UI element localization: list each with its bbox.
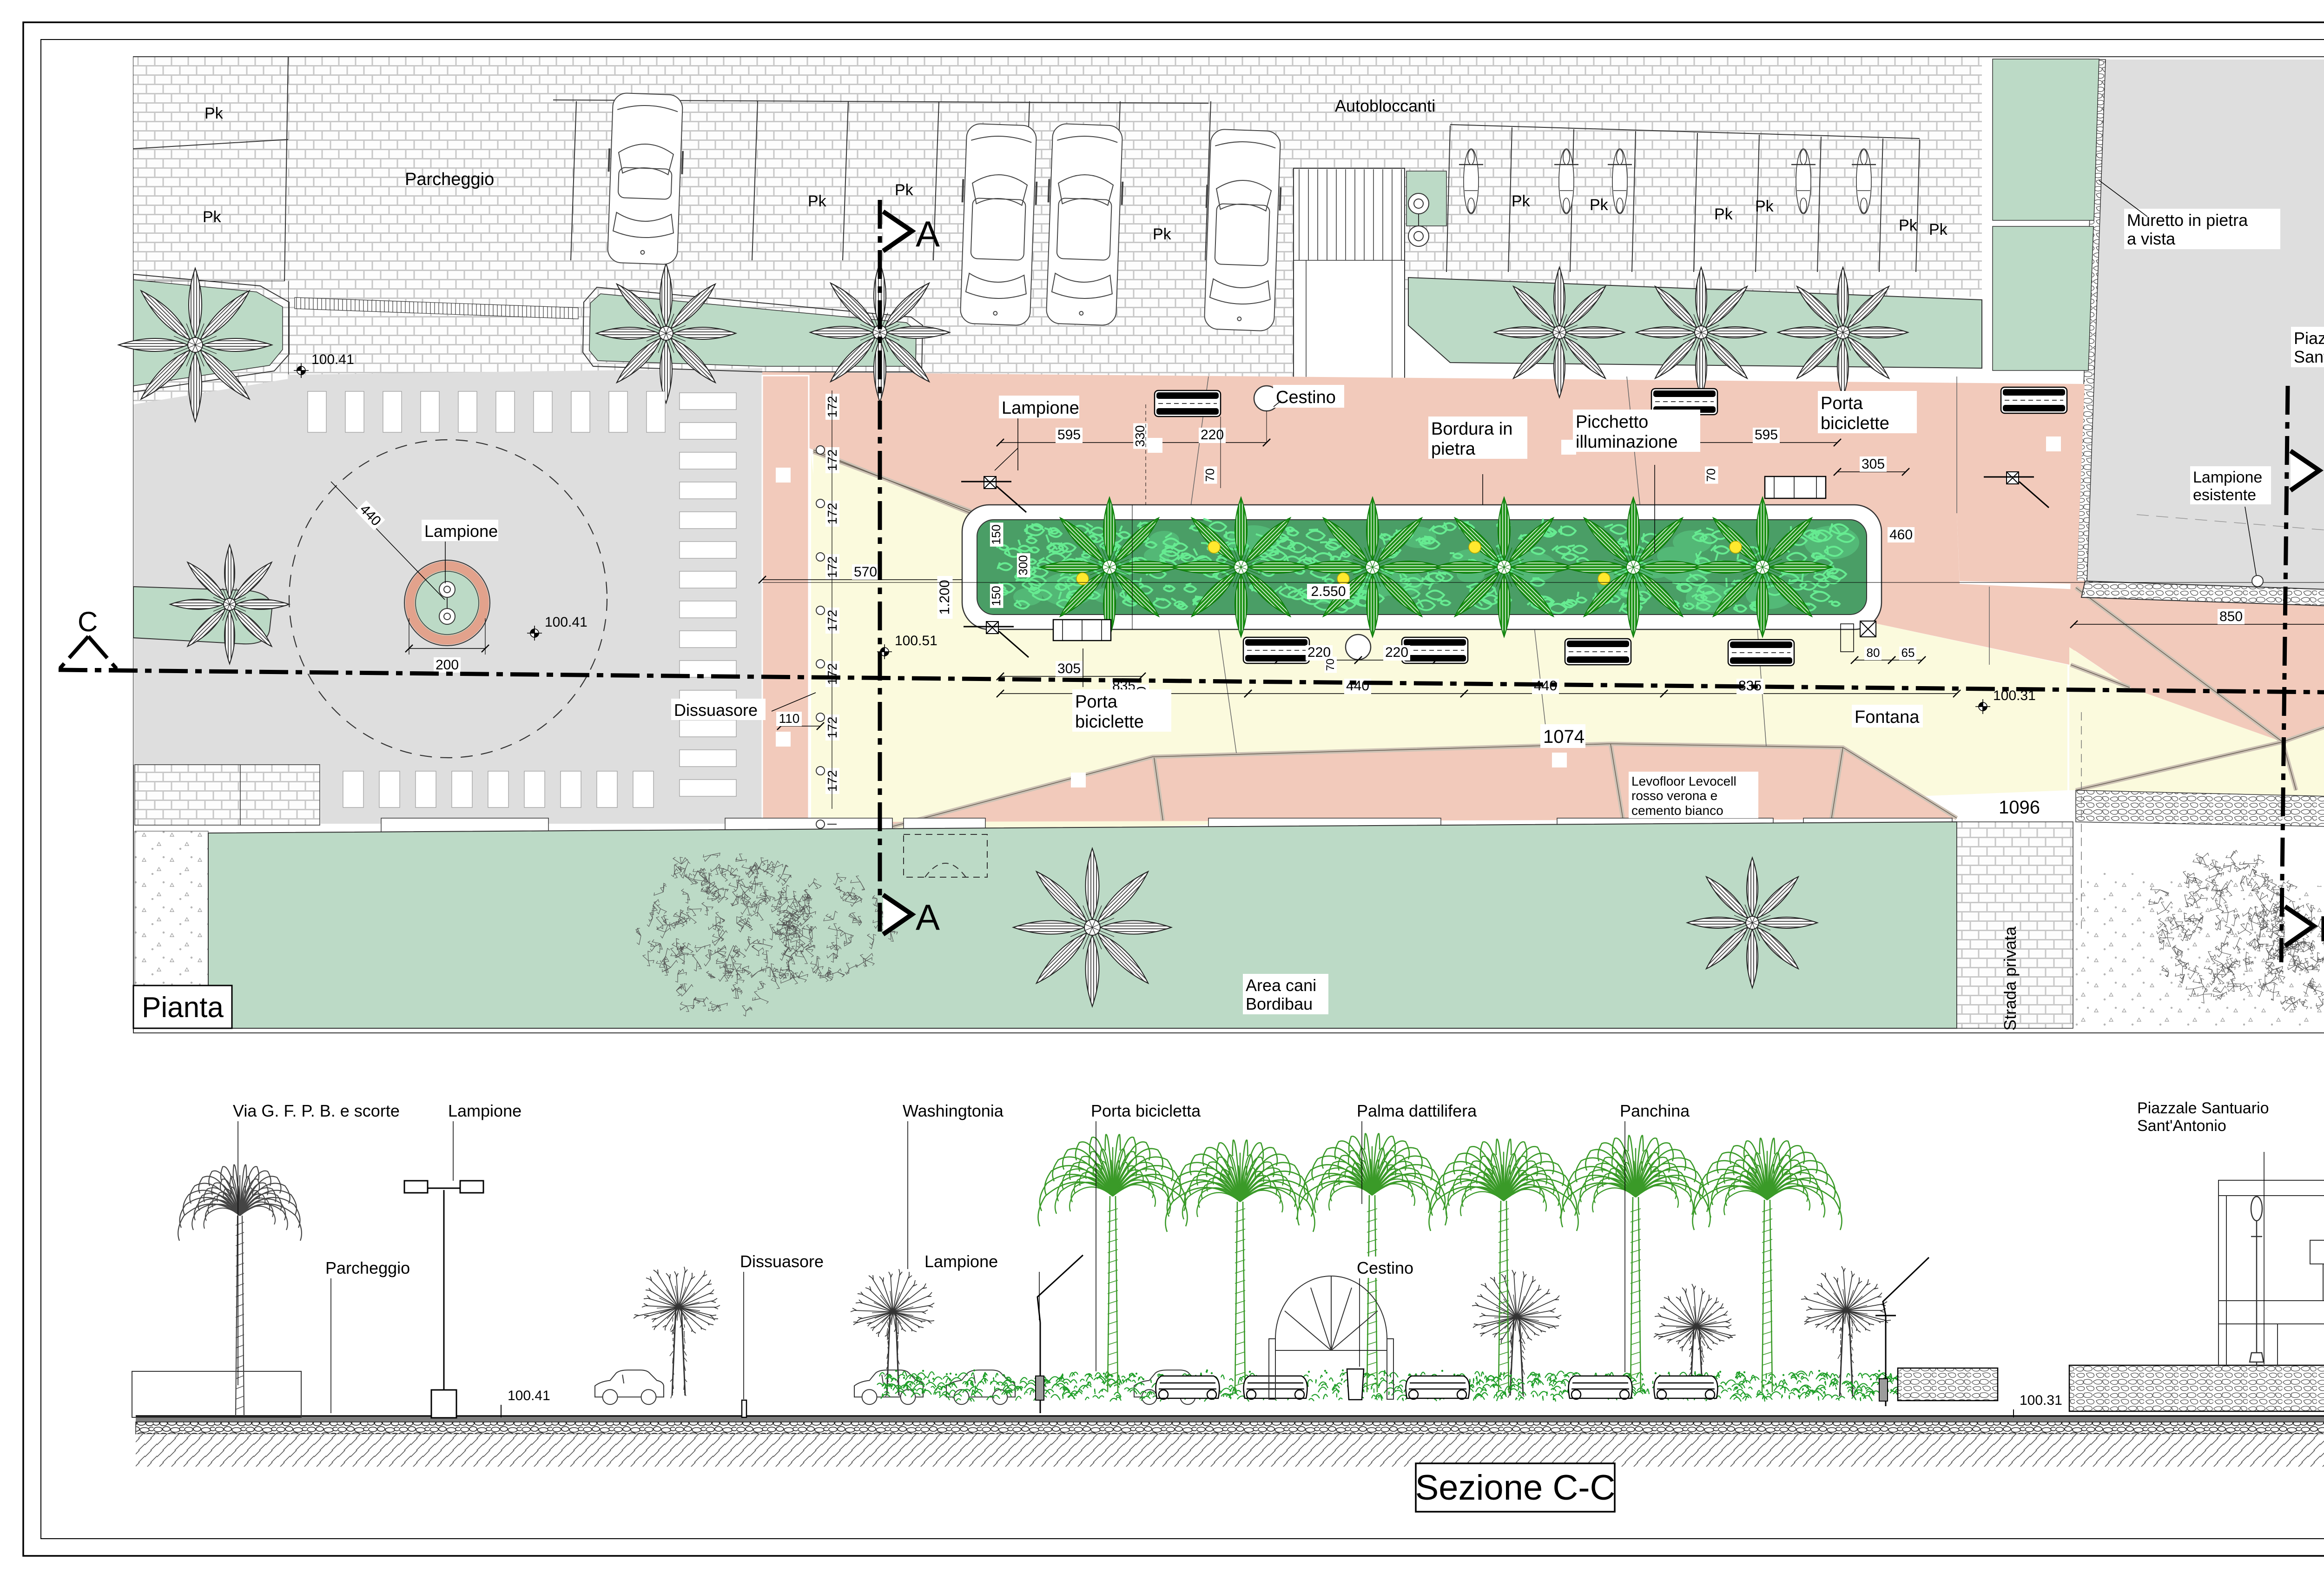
svg-text:100.41: 100.41 (545, 615, 588, 630)
svg-text:rosso verona e: rosso verona e (1631, 788, 1717, 803)
svg-text:Cestino: Cestino (1357, 1258, 1413, 1277)
svg-text:Pk: Pk (808, 192, 827, 210)
svg-text:Lampione: Lampione (448, 1101, 522, 1120)
svg-text:80: 80 (1867, 646, 1880, 660)
svg-text:Parcheggio: Parcheggio (405, 170, 494, 189)
svg-text:a vista: a vista (2127, 229, 2176, 248)
svg-text:2.550: 2.550 (1311, 584, 1346, 599)
svg-text:Sant'Antonio: Sant'Antonio (2137, 1117, 2226, 1135)
svg-text:Muretto in pietra: Muretto in pietra (2127, 211, 2248, 230)
svg-text:70: 70 (1324, 659, 1337, 671)
svg-text:Santuario Sant'Antonio: Santuario Sant'Antonio (2294, 347, 2324, 366)
svg-text:70: 70 (1203, 469, 1217, 482)
svg-text:Panchina: Panchina (1620, 1101, 1690, 1120)
svg-text:200: 200 (436, 657, 459, 673)
svg-text:595: 595 (1755, 427, 1778, 443)
svg-text:Bordura in: Bordura in (1431, 419, 1512, 439)
svg-text:100.51: 100.51 (895, 633, 938, 648)
svg-text:Strada privata: Strada privata (2000, 926, 2020, 1031)
svg-text:C: C (78, 606, 98, 637)
svg-text:100.31: 100.31 (2020, 1393, 2062, 1408)
svg-text:595: 595 (1057, 427, 1081, 443)
svg-text:Parcheggio: Parcheggio (325, 1258, 410, 1277)
svg-text:Sezione C-C: Sezione C-C (1415, 1468, 1616, 1508)
svg-text:300: 300 (1016, 555, 1030, 575)
svg-text:100.41: 100.41 (311, 352, 354, 367)
svg-text:Porta bicicletta: Porta bicicletta (1091, 1101, 1201, 1120)
svg-text:1096: 1096 (1999, 797, 2040, 818)
svg-text:65: 65 (1901, 646, 1915, 660)
svg-text:Picchetto: Picchetto (1576, 412, 1648, 432)
svg-text:305: 305 (1862, 456, 1885, 472)
svg-text:Pianta: Pianta (142, 992, 224, 1024)
svg-text:Pk: Pk (1755, 198, 1774, 215)
svg-text:305: 305 (1057, 661, 1081, 676)
svg-text:Porta: Porta (1075, 692, 1118, 712)
svg-text:Lampione: Lampione (924, 1252, 998, 1271)
svg-text:pietra: pietra (1431, 439, 1476, 459)
svg-text:220: 220 (1385, 645, 1408, 660)
svg-text:biciclette: biciclette (1075, 712, 1144, 732)
svg-text:Lampione: Lampione (424, 522, 498, 541)
svg-text:1074: 1074 (1543, 727, 1585, 747)
svg-text:100.41: 100.41 (508, 1388, 550, 1403)
svg-text:Fontana: Fontana (1855, 708, 1920, 727)
svg-text:70: 70 (1704, 469, 1718, 482)
svg-text:Bordibau: Bordibau (1246, 994, 1313, 1013)
svg-text:460: 460 (1889, 527, 1913, 542)
svg-text:Porta: Porta (1821, 394, 1863, 413)
svg-text:cemento bianco: cemento bianco (1631, 803, 1723, 818)
svg-text:Piazzale Santuario: Piazzale Santuario (2137, 1099, 2269, 1117)
svg-text:illuminazione: illuminazione (1576, 432, 1678, 452)
svg-text:150: 150 (989, 524, 1003, 544)
svg-text:Dissuasore: Dissuasore (740, 1252, 824, 1271)
svg-text:Palma dattilifera: Palma dattilifera (1357, 1101, 1477, 1120)
svg-text:Area cani: Area cani (1246, 976, 1316, 995)
svg-text:Pk: Pk (203, 208, 222, 226)
svg-text:Lampione: Lampione (1002, 398, 1079, 418)
svg-text:150: 150 (989, 586, 1003, 606)
svg-text:Pk: Pk (205, 105, 224, 122)
svg-text:Pk: Pk (1899, 217, 1918, 234)
svg-text:esistente: esistente (2193, 486, 2256, 504)
svg-text:Cestino: Cestino (1276, 388, 1336, 407)
svg-text:Washingtonia: Washingtonia (903, 1101, 1004, 1120)
svg-text:Dissuasore: Dissuasore (674, 701, 758, 720)
svg-text:B: B (2318, 908, 2324, 949)
svg-text:110: 110 (779, 711, 800, 726)
svg-text:1.200: 1.200 (937, 580, 952, 615)
svg-text:Pk: Pk (1929, 221, 1948, 238)
svg-text:Pk: Pk (1590, 196, 1609, 214)
svg-text:570: 570 (854, 564, 877, 580)
svg-text:Autobloccanti: Autobloccanti (1335, 96, 1435, 115)
svg-text:Via G. F. P. B. e scorte: Via G. F. P. B. e scorte (233, 1101, 400, 1120)
svg-text:Pk: Pk (895, 181, 914, 199)
svg-text:Levofloor Levocell: Levofloor Levocell (1631, 774, 1736, 788)
svg-text:biciclette: biciclette (1821, 414, 1889, 433)
svg-text:Pk: Pk (1153, 225, 1172, 243)
svg-text:A: A (916, 897, 940, 938)
svg-text:330: 330 (1133, 425, 1147, 447)
svg-text:Pk: Pk (1714, 205, 1733, 223)
svg-text:850: 850 (2219, 609, 2243, 624)
svg-text:Pk: Pk (1512, 192, 1531, 210)
svg-text:Piazzale: Piazzale (2294, 329, 2324, 348)
svg-text:440: 440 (1346, 678, 1369, 694)
svg-text:Lampione: Lampione (2193, 469, 2262, 486)
svg-text:A: A (916, 213, 940, 254)
